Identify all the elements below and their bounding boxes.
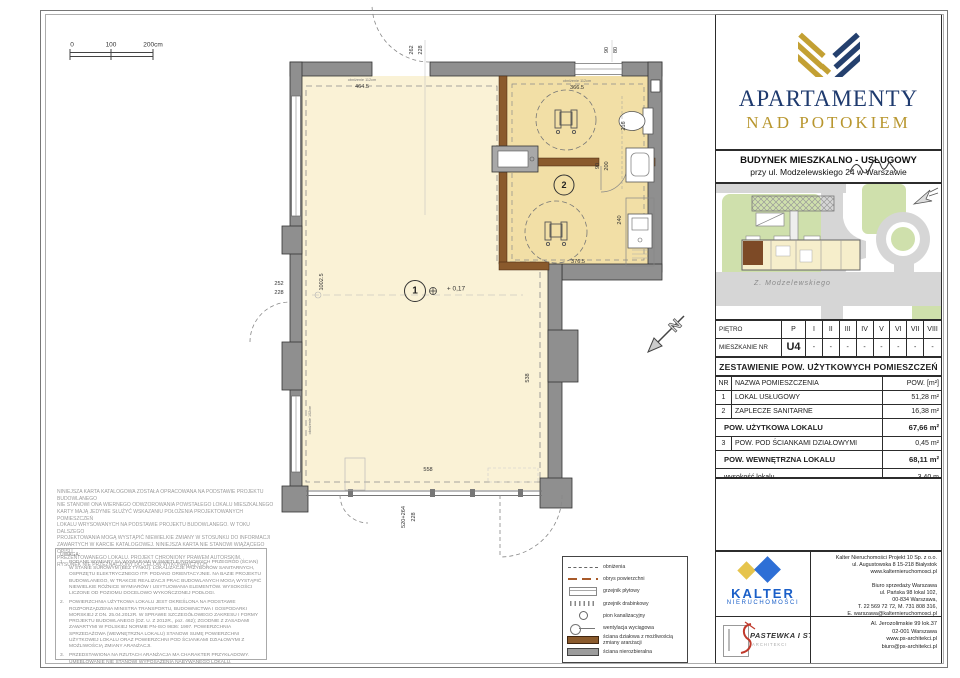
catalog-sheet: 0 100 200cm NINIEJSZA KARTA KATALOGOWA Z… [0,0,960,678]
dim-label: 228 [411,512,417,521]
dim-label: obniżenie 112cm [563,79,591,83]
kalter-gold-diamond-icon [737,561,755,579]
kalter-subtitle: NIERUCHOMOŚCI [716,600,810,606]
dim-label: obniżenie 102cm [308,406,312,435]
level-mark-icon [430,288,437,295]
brand-emblem-icon [798,23,860,77]
kalter-blue-diamond-icon [754,556,781,583]
panel-radiator-symbol [569,587,597,596]
door-swings [250,4,562,557]
brand-header: APARTAMENTY NAD POTOKIEM [715,14,942,150]
area-table: NR NAZWA POMIESZCZENIA POW. [m²] 1 LOKAL… [715,376,942,478]
scale-tick-200: 200cm [143,42,163,49]
svg-text:N: N [666,316,686,336]
dim-label: 1002.5 [319,273,325,290]
dim-label: 520+264 [401,506,407,528]
notes-title: UWAGA: [60,552,262,558]
note-item: 1. PODANE WYMIARY SĄ WYMIARAMI W ŚWIETLE… [60,560,262,597]
building-address: przy ul. Modzelewskiego 24 w Warszawie [716,167,941,177]
scale-tick-100: 100 [106,42,117,49]
structural-wall-symbol [567,648,599,656]
dim-label: 558 [423,467,432,473]
level-value: + 0,17 [447,286,465,293]
brand-name: APARTAMENTY [716,86,941,112]
kitchen-sink-icon [626,198,654,266]
dim-label: 366.5 [570,85,584,91]
legend-item: ściana nierozbieralna [563,646,687,658]
room1-circle [405,281,426,302]
dim-label: 228 [274,290,283,296]
kalter-hq-address: Kalter Nieruchomości Projekt 10 Sp. z o.… [836,555,937,575]
apartment-row: MIESZKANIE NR U4 - - - - - - - - [716,339,941,357]
room1-outline [306,86,540,482]
unit-number: U4 [782,339,806,357]
legend: obniżenia obrys powierzchni grzejnik pły… [562,556,688,663]
dim-label: 90 [595,163,601,169]
kalter-sales-office: Biuro sprzedaży Warszawa ul. Pańska 98 l… [847,583,937,617]
legend-item: ściana działowa z możliwością zmiany ara… [563,634,687,646]
site-map: Z. Modzelewskiego [715,183,942,320]
room2-floor [505,76,652,268]
north-arrow-icon: N [648,316,685,352]
scale-tick-0: 0 [70,42,74,49]
legend-item: wentylacja wyciągowa [563,622,687,634]
toilet-icon [619,108,653,134]
sewage-riser-symbol [579,611,588,620]
site-map-drawing [716,184,942,319]
kalter-contacts: Kalter Nieruchomości Projekt 10 Sp. z o.… [810,551,942,617]
note-item: 3. PRZEDSTAWIONA NA RZUTACH ARANŻACJA MA… [60,653,262,665]
unit-highlight [743,241,763,265]
dim-label: 464.5 [355,84,369,90]
brand-subname: NAD POTOKIEM [716,113,941,133]
internal-area-sum: POW. WEWNĘTRZNA LOKALU 68,11 m² [716,451,941,469]
street-label: Z. Modzelewskiego [754,280,831,287]
dim-label: 262 [409,45,415,54]
room2-outline [512,84,644,260]
wall-cabinet [492,146,538,172]
storefront-glazing [306,489,542,497]
room2-number: 2 [561,180,566,190]
room1-floor [297,76,548,490]
floor-row: PIĘTRO P I II III IV V VI VII VIII [716,321,941,339]
structural-walls [282,62,662,512]
dim-label: 216 [621,121,627,130]
legend-item: pion kanalizacyjny [563,610,687,622]
dim-label: 228 [418,45,424,54]
dim-label: 538 [525,373,531,382]
building-type: BUDYNEK MIESZKALNO - USŁUGOWY [716,155,941,166]
turning-circles [525,90,596,263]
architect-logo-cell: PASTEWKA I STRÓJ ARCHITEKCI [715,616,811,664]
reference-lines [312,40,612,490]
partition-walls [499,76,655,270]
legend-item: obrys powierzchni [563,573,687,585]
usable-area-sum: POW. UŻYTKOWA LOKALU 67,66 m² [716,419,941,437]
empty-panel [715,478,942,551]
partition-wall-symbol [567,636,599,644]
area-outline-symbol [568,578,598,580]
dim-label: 80 [613,47,619,53]
scale-bar [70,49,153,60]
neighbor-building [752,196,834,211]
kalter-logo-cell: KALTER NIERUCHOMOŚCI [715,551,811,617]
floor-table: PIĘTRO P I II III IV V VI VII VIII MIESZ… [715,320,942,357]
area-table-title: ZESTAWIENIE POW. UŻYTKOWYCH POMIESZCZEŃ [715,357,942,376]
building-header: BUDYNEK MIESZKALNO - USŁUGOWY przy ul. M… [715,150,942,183]
dim-label: obniżenie 112cm [348,78,376,82]
legend-item: grzejnik płytowy [563,585,687,597]
interior-door [601,166,627,192]
dim-label: 240 [617,215,623,224]
note-item: 2. POWIERZCHNIA UŻYTKOWA LOKALU JEST OKR… [60,600,262,650]
legend-item: obniżenia [563,561,687,573]
dim-label: 252 [274,281,283,287]
area-row: 1 LOKAL USŁUGOWY 51,28 m² [716,391,941,405]
area-row: 3 POW. POD ŚCIANKAMI DZIAŁOWYMI 0,45 m² [716,437,941,451]
dim-label: 90 [604,47,610,53]
ladder-radiator-symbol [570,601,596,606]
wheelchair-icon [555,110,577,134]
dim-label: 200 [604,161,610,170]
dim-label: 376.5 [571,259,585,265]
legend-item: grzejnik drabinkowy [563,598,687,610]
washbasin-icon [626,148,654,182]
area-row: 2 ZAPLECZE SANITARNE 16,38 m² [716,405,941,419]
exhaust-vent-symbol [570,624,596,633]
area-table-header: NR NAZWA POMIESZCZENIA POW. [m²] [716,377,941,391]
room2-circle [554,175,574,195]
architect-address: Al. Jerozolimskie 99 lok.37 02-001 Warsz… [810,616,942,664]
windows [292,64,661,473]
kalter-name: KALTER [716,586,810,601]
title-block: APARTAMENTY NAD POTOKIEM BUDYNEK MIESZKA… [715,14,944,664]
notes-box: UWAGA: 1. PODANE WYMIARY SĄ WYMIARAMI W … [55,548,267,660]
lowered-ceiling-symbol [568,567,598,568]
room1-number: 1 [412,286,418,297]
architect-subtitle: ARCHITEKCI [752,642,787,647]
wheelchair-icon [545,222,567,246]
